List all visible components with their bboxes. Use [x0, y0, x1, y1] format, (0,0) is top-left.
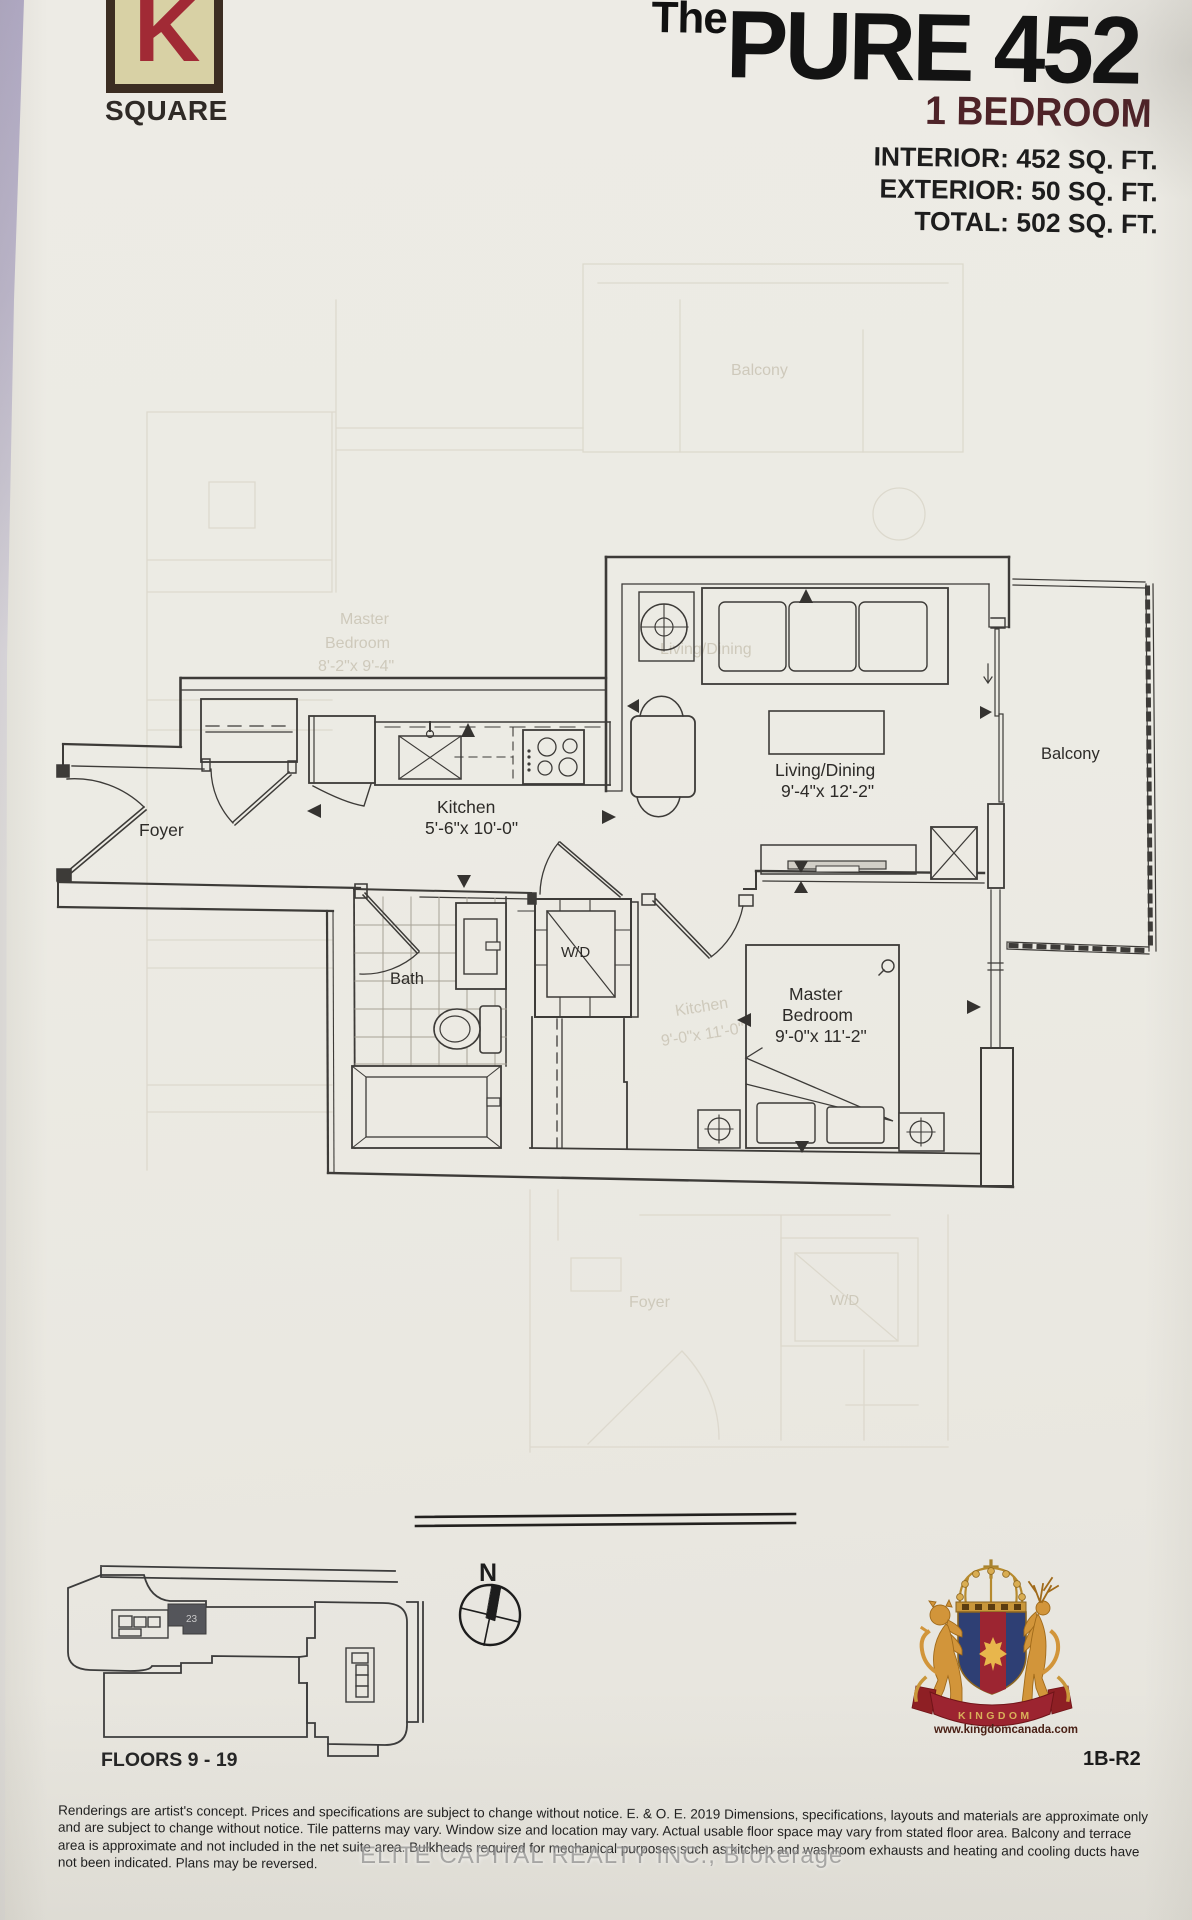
svg-text:Foyer: Foyer [629, 1294, 671, 1311]
svg-text:KINGDOM: KINGDOM [958, 1710, 1033, 1722]
svg-text:Living/Dining: Living/Dining [775, 760, 875, 780]
svg-text:www.kingdomcanada.com: www.kingdomcanada.com [933, 1724, 1078, 1736]
svg-text:9'-0"x 11'-0": 9'-0"x 11'-0" [660, 1020, 746, 1050]
svg-text:Master: Master [789, 984, 843, 1004]
svg-text:Master: Master [340, 611, 390, 628]
svg-text:23: 23 [186, 1614, 198, 1625]
svg-text:Balcony: Balcony [1041, 745, 1100, 763]
svg-text:Balcony: Balcony [731, 362, 788, 379]
svg-text:Kitchen: Kitchen [674, 995, 729, 1020]
svg-text:Bedroom: Bedroom [782, 1005, 853, 1025]
svg-text:Kitchen: Kitchen [437, 797, 495, 817]
svg-text:Living/Dining: Living/Dining [660, 641, 752, 658]
svg-text:W/D: W/D [561, 944, 590, 961]
svg-text:9'-4"x 12'-2": 9'-4"x 12'-2" [781, 781, 874, 801]
svg-text:8'-2"x 9'-4": 8'-2"x 9'-4" [318, 658, 394, 675]
svg-text:N: N [479, 1559, 497, 1587]
svg-text:Bedroom: Bedroom [325, 635, 390, 652]
svg-text:9'-0"x 11'-2": 9'-0"x 11'-2" [775, 1026, 867, 1046]
svg-text:5'-6"x 10'-0": 5'-6"x 10'-0" [425, 818, 518, 838]
svg-text:W/D: W/D [830, 1292, 859, 1309]
svg-text:Bath: Bath [390, 970, 424, 988]
svg-text:Foyer: Foyer [139, 820, 184, 840]
